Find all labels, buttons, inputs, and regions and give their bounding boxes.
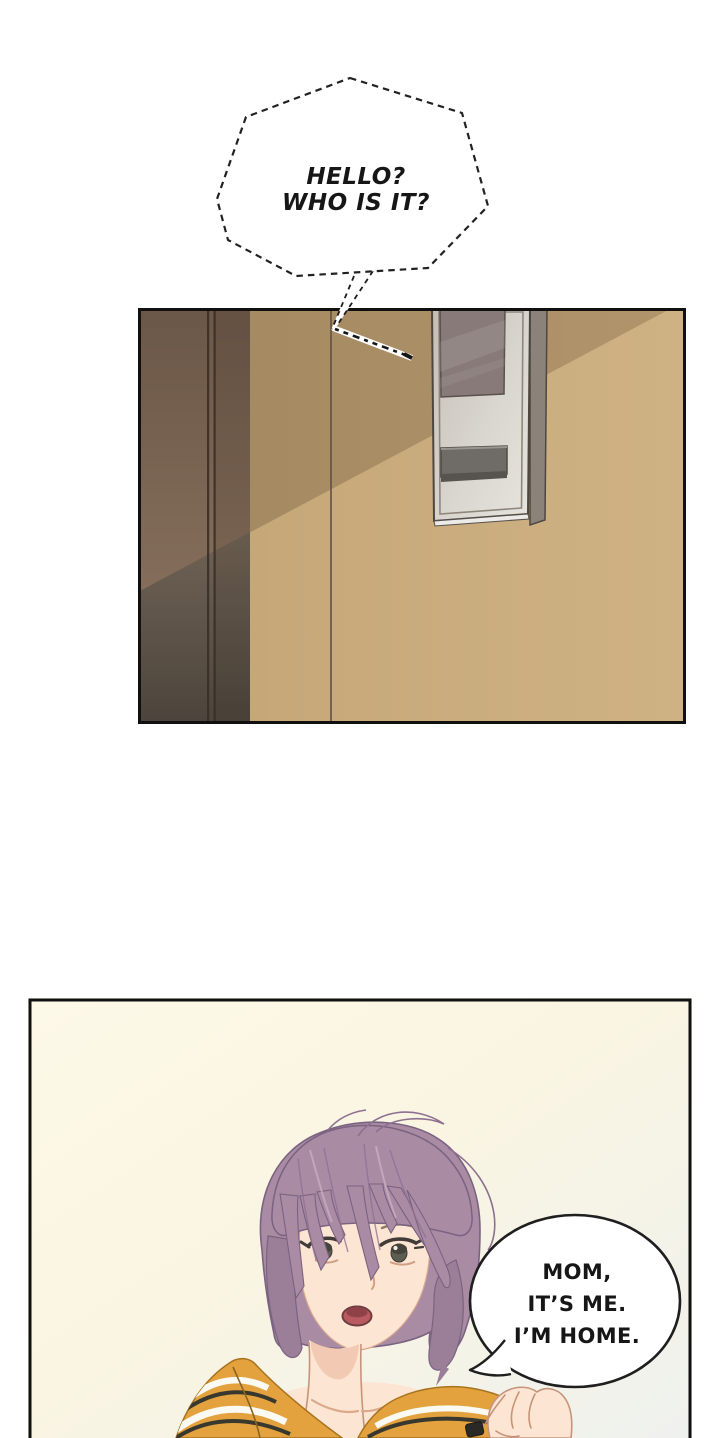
- speech-line: HELLO?: [306, 164, 405, 190]
- mouth: [343, 1307, 372, 1326]
- intercom-side: [530, 308, 547, 525]
- held-object: [465, 1421, 484, 1437]
- speech-line: MOM,: [542, 1260, 611, 1284]
- speech-line: IT’S ME.: [528, 1292, 627, 1316]
- doorbell-speech-bubble: HELLO? WHO IS IT?: [190, 60, 510, 380]
- speech-line: WHO IS IT?: [282, 190, 430, 216]
- comic-page: MOM, IT’S ME. I’M HOME. HELLO? WHO IS IT…: [0, 0, 720, 1438]
- speech-line: I’M HOME.: [514, 1324, 640, 1348]
- reply-speech-bubble: MOM, IT’S ME. I’M HOME.: [470, 1215, 680, 1387]
- hair-bangs: [272, 1126, 472, 1298]
- panel-reply: MOM, IT’S ME. I’M HOME.: [28, 998, 692, 1438]
